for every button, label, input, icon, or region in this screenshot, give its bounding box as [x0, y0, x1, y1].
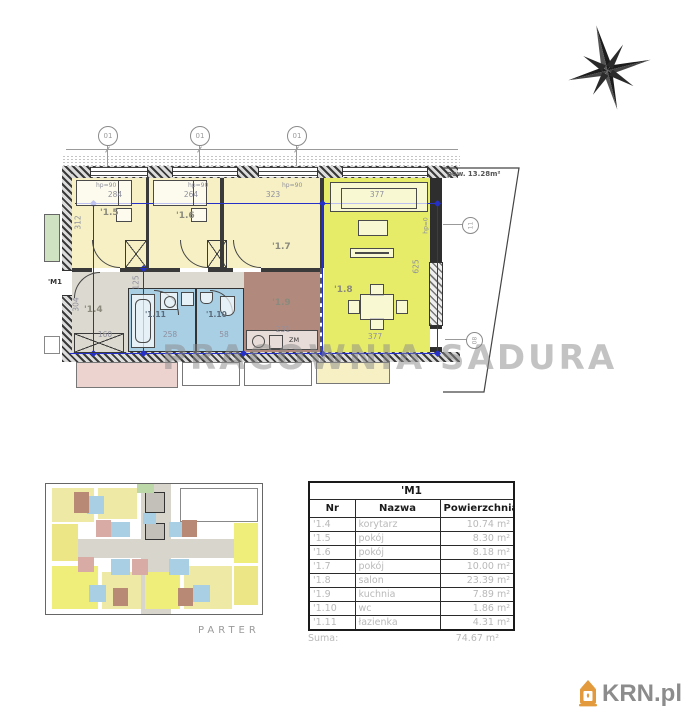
- dimension-line-top: [66, 149, 458, 150]
- room-label: '1.6: [176, 211, 195, 221]
- overview-stairs: [145, 523, 164, 540]
- table-row: '1.11łazienka4.31 m²: [309, 616, 514, 631]
- window: [342, 167, 428, 177]
- unit-label: 'M1: [48, 278, 62, 286]
- dim-text: 160: [90, 330, 120, 339]
- dim-text: 377: [362, 190, 392, 199]
- suma-value: 74.67 m²: [456, 633, 513, 644]
- building-overview: [45, 483, 263, 615]
- grid-stem: [296, 144, 297, 168]
- overview-room: [180, 488, 258, 522]
- grid-bubble-label: 11: [467, 222, 474, 230]
- entrance-door-opening: [62, 270, 72, 296]
- overview-corridor: [63, 539, 244, 559]
- dim-text: 284: [100, 190, 130, 199]
- wardrobe: [207, 240, 227, 268]
- grid-bubble: 01: [98, 126, 118, 146]
- door-opening: [233, 268, 261, 272]
- area-table: 'M1 Nr Nazwa Powierzchnia '1.4korytarz10…: [308, 481, 515, 631]
- neighbor-room: [44, 336, 60, 354]
- window: [90, 167, 148, 177]
- table-row: '1.9kuchnia7.89 m²: [309, 588, 514, 602]
- exterior-wall-left: [62, 166, 72, 362]
- overview-room: [87, 496, 104, 514]
- room-label: '1.5: [100, 208, 119, 218]
- sink: [181, 292, 194, 306]
- room-label: '1.10: [206, 310, 227, 319]
- chair: [348, 300, 360, 314]
- sill-text: hp=90: [96, 182, 116, 189]
- col-header-name: Nazwa: [355, 500, 440, 518]
- overview-room: [143, 513, 156, 525]
- room-label: '1.7: [272, 242, 291, 252]
- overview-room: [234, 523, 258, 563]
- table-row: '1.6pokój8.18 m²: [309, 546, 514, 560]
- lantern-icon: [576, 680, 600, 708]
- sill-text: hp=90: [188, 182, 208, 189]
- krn-logo-text: KRN.pl: [602, 680, 682, 708]
- dim-text: 264: [176, 190, 206, 199]
- room-label: '1.9: [272, 298, 291, 308]
- overview-room: [182, 520, 197, 537]
- overview-room: [96, 520, 111, 537]
- overview-room: [145, 572, 180, 608]
- overview-caption: PARTER: [198, 625, 260, 636]
- dim-text: 125: [132, 271, 141, 295]
- table-title: 'M1: [309, 482, 514, 500]
- table-row: '1.5pokój8.30 m²: [309, 532, 514, 546]
- wardrobe: [125, 240, 147, 268]
- table-row: '1.4korytarz10.74 m²: [309, 518, 514, 532]
- overview-room: [137, 484, 154, 493]
- floorplan-page: 01 01 01 11 08: [0, 0, 685, 717]
- overview-room: [113, 588, 128, 606]
- krn-logo: KRN.pl: [576, 680, 682, 708]
- overview-room: [111, 559, 130, 575]
- grid-bubble: 11: [462, 217, 479, 234]
- overview-room: [89, 585, 106, 602]
- table-row: '1.10wc1.86 m²: [309, 602, 514, 616]
- dim-line-blue: [437, 203, 438, 353]
- grid-bubble: 01: [190, 126, 210, 146]
- dim-text: 625: [412, 255, 421, 279]
- table-row: '1.8salon23.39 m²: [309, 574, 514, 588]
- area-table-wrap: 'M1 Nr Nazwa Powierzchnia '1.4korytarz10…: [308, 481, 515, 644]
- grid-bubble-label: 01: [196, 132, 205, 140]
- window: [258, 167, 318, 177]
- col-header-nr: Nr: [309, 500, 355, 518]
- room-label: '1.11: [145, 310, 166, 319]
- dim-line-blue: [322, 203, 323, 353]
- neighbor-room-green: [44, 214, 60, 262]
- grid-stem: [199, 144, 200, 168]
- overview-stairs: [145, 492, 164, 513]
- overview-room: [78, 557, 93, 573]
- dining-table: [360, 294, 394, 320]
- room-label: '1.4: [84, 305, 103, 315]
- overview-room: [178, 588, 193, 606]
- room-label: '1.8: [334, 285, 353, 295]
- overview-room: [74, 492, 89, 513]
- grid-stem: [107, 144, 108, 168]
- overview-room: [132, 559, 147, 575]
- suma-label: Suma:: [308, 633, 338, 644]
- dim-text: 323: [258, 190, 288, 199]
- chair: [396, 300, 408, 314]
- compass-rose-icon: [555, 18, 660, 123]
- coffee-table: [358, 220, 388, 236]
- bathtub: [131, 294, 155, 348]
- door-opening: [180, 268, 208, 272]
- dim-text: 231: [268, 325, 298, 334]
- overview-room: [52, 524, 78, 560]
- dim-text: 312: [74, 211, 83, 235]
- tv-sideboard: [350, 248, 394, 258]
- overview-room: [234, 566, 258, 605]
- wc-sink: [200, 292, 213, 304]
- balcony-area-text: pow. 13.28m²: [447, 170, 500, 178]
- window: [172, 167, 238, 177]
- washing-machine: [160, 292, 178, 310]
- overview-room: [111, 522, 130, 538]
- grid-bubble-label: 01: [293, 132, 302, 140]
- dim-text: 304: [72, 293, 81, 317]
- overview-room: [193, 585, 210, 602]
- table-row: '1.7pokój10.00 m²: [309, 560, 514, 574]
- suma-row: Suma: 74.67 m²: [308, 633, 513, 644]
- overview-room: [169, 559, 188, 575]
- sill-text: hp=0: [423, 214, 430, 238]
- col-header-area: Powierzchnia: [440, 500, 514, 518]
- grid-bubble: 01: [287, 126, 307, 146]
- sill-text: hp=90: [282, 182, 302, 189]
- leader-line: [443, 224, 463, 225]
- watermark-text: PRACOWNIA SADURA: [162, 338, 617, 378]
- grid-bubble-label: 01: [104, 132, 113, 140]
